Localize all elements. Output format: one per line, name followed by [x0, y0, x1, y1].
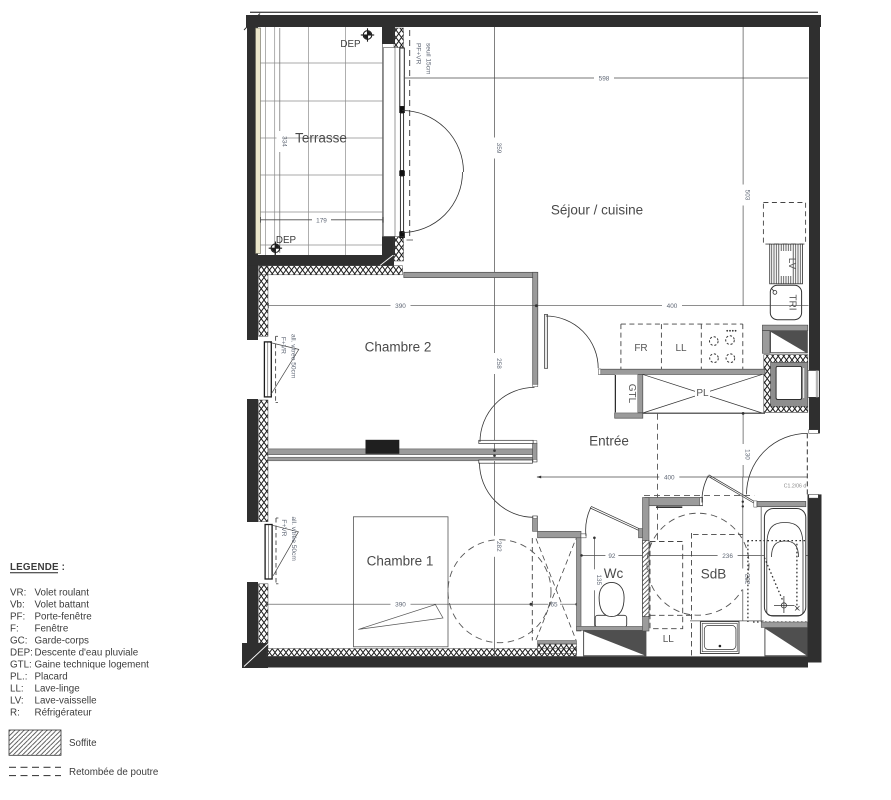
svg-text:258: 258 [495, 358, 502, 369]
svg-text:GTL:: GTL: [10, 660, 32, 671]
svg-text:LL: LL [675, 343, 687, 354]
svg-text:F+VR: F+VR [280, 519, 287, 536]
svg-text:92: 92 [608, 553, 616, 560]
svg-text:PF:: PF: [10, 612, 25, 623]
svg-text:236: 236 [722, 553, 733, 560]
svg-text:334: 334 [280, 136, 287, 147]
svg-text:all. vitrée 50cm: all. vitrée 50cm [290, 517, 297, 562]
svg-text:179: 179 [316, 217, 327, 224]
svg-text:GC:: GC: [10, 636, 27, 647]
svg-text:Garde-corps: Garde-corps [35, 636, 90, 647]
svg-text:222: 222 [743, 574, 750, 585]
svg-text:Chambre 2: Chambre 2 [365, 340, 432, 355]
svg-text:503: 503 [744, 190, 751, 201]
svg-text:LEGENDE :: LEGENDE : [10, 562, 65, 573]
svg-text:PF+VR: PF+VR [415, 43, 422, 65]
svg-text:LV: LV [786, 258, 797, 270]
svg-text:LL: LL [663, 634, 675, 645]
svg-text:SdB: SdB [701, 567, 727, 582]
svg-text:FR: FR [634, 343, 647, 354]
svg-text:VR:: VR: [10, 588, 26, 599]
svg-text:130: 130 [744, 449, 751, 460]
svg-text:359: 359 [495, 143, 502, 154]
svg-text:Retombée de poutre: Retombée de poutre [69, 767, 159, 778]
svg-text:390: 390 [395, 303, 406, 310]
svg-text:Réfrigérateur: Réfrigérateur [35, 708, 93, 719]
svg-text:R:: R: [10, 708, 20, 719]
svg-text:400: 400 [667, 303, 678, 310]
svg-text:TRI: TRI [787, 294, 798, 310]
svg-text:LV:: LV: [10, 696, 24, 707]
svg-text:Wc: Wc [604, 566, 624, 581]
svg-text:Vb:: Vb: [10, 600, 25, 611]
svg-text:Placard: Placard [35, 672, 68, 683]
svg-text:135: 135 [595, 574, 602, 585]
svg-text:Porte-fenêtre: Porte-fenêtre [35, 612, 93, 623]
svg-text:390: 390 [395, 602, 406, 609]
svg-text:65: 65 [550, 602, 558, 609]
svg-text:Séjour / cuisine: Séjour / cuisine [551, 203, 643, 218]
svg-text:Lave-linge: Lave-linge [35, 684, 81, 695]
svg-text:Terrasse: Terrasse [295, 131, 347, 146]
svg-text:400: 400 [664, 475, 675, 482]
svg-text:F+VR: F+VR [280, 337, 287, 354]
svg-text:all. vitrée 50cm: all. vitrée 50cm [290, 334, 297, 379]
svg-text:seuil 15cm: seuil 15cm [425, 43, 432, 75]
svg-text:598: 598 [599, 75, 610, 82]
svg-text:282: 282 [495, 541, 502, 552]
svg-text:Volet roulant: Volet roulant [35, 588, 90, 599]
svg-text:Chambre 1: Chambre 1 [367, 554, 434, 569]
svg-text:Entrée: Entrée [589, 434, 629, 449]
svg-text:Gaine technique logement: Gaine technique logement [35, 660, 150, 671]
svg-text:Volet battant: Volet battant [35, 600, 90, 611]
svg-text:Descente d'eau pluviale: Descente d'eau pluviale [35, 648, 139, 659]
svg-text:Soffite: Soffite [69, 738, 97, 749]
svg-text:DEP:: DEP: [10, 648, 33, 659]
svg-text:DEP: DEP [276, 235, 297, 246]
svg-text:GTL: GTL [626, 384, 637, 404]
svg-text:Lave-vaisselle: Lave-vaisselle [35, 696, 98, 707]
svg-text:PL: PL [696, 388, 709, 399]
svg-text:Fenêtre: Fenêtre [35, 624, 69, 635]
svg-text:C1.2/06 d: C1.2/06 d [784, 484, 807, 490]
svg-text:LL:: LL: [10, 684, 24, 695]
svg-text:DEP: DEP [340, 39, 361, 50]
svg-text:PL.:: PL.: [10, 672, 27, 683]
svg-text:F:: F: [10, 624, 19, 635]
